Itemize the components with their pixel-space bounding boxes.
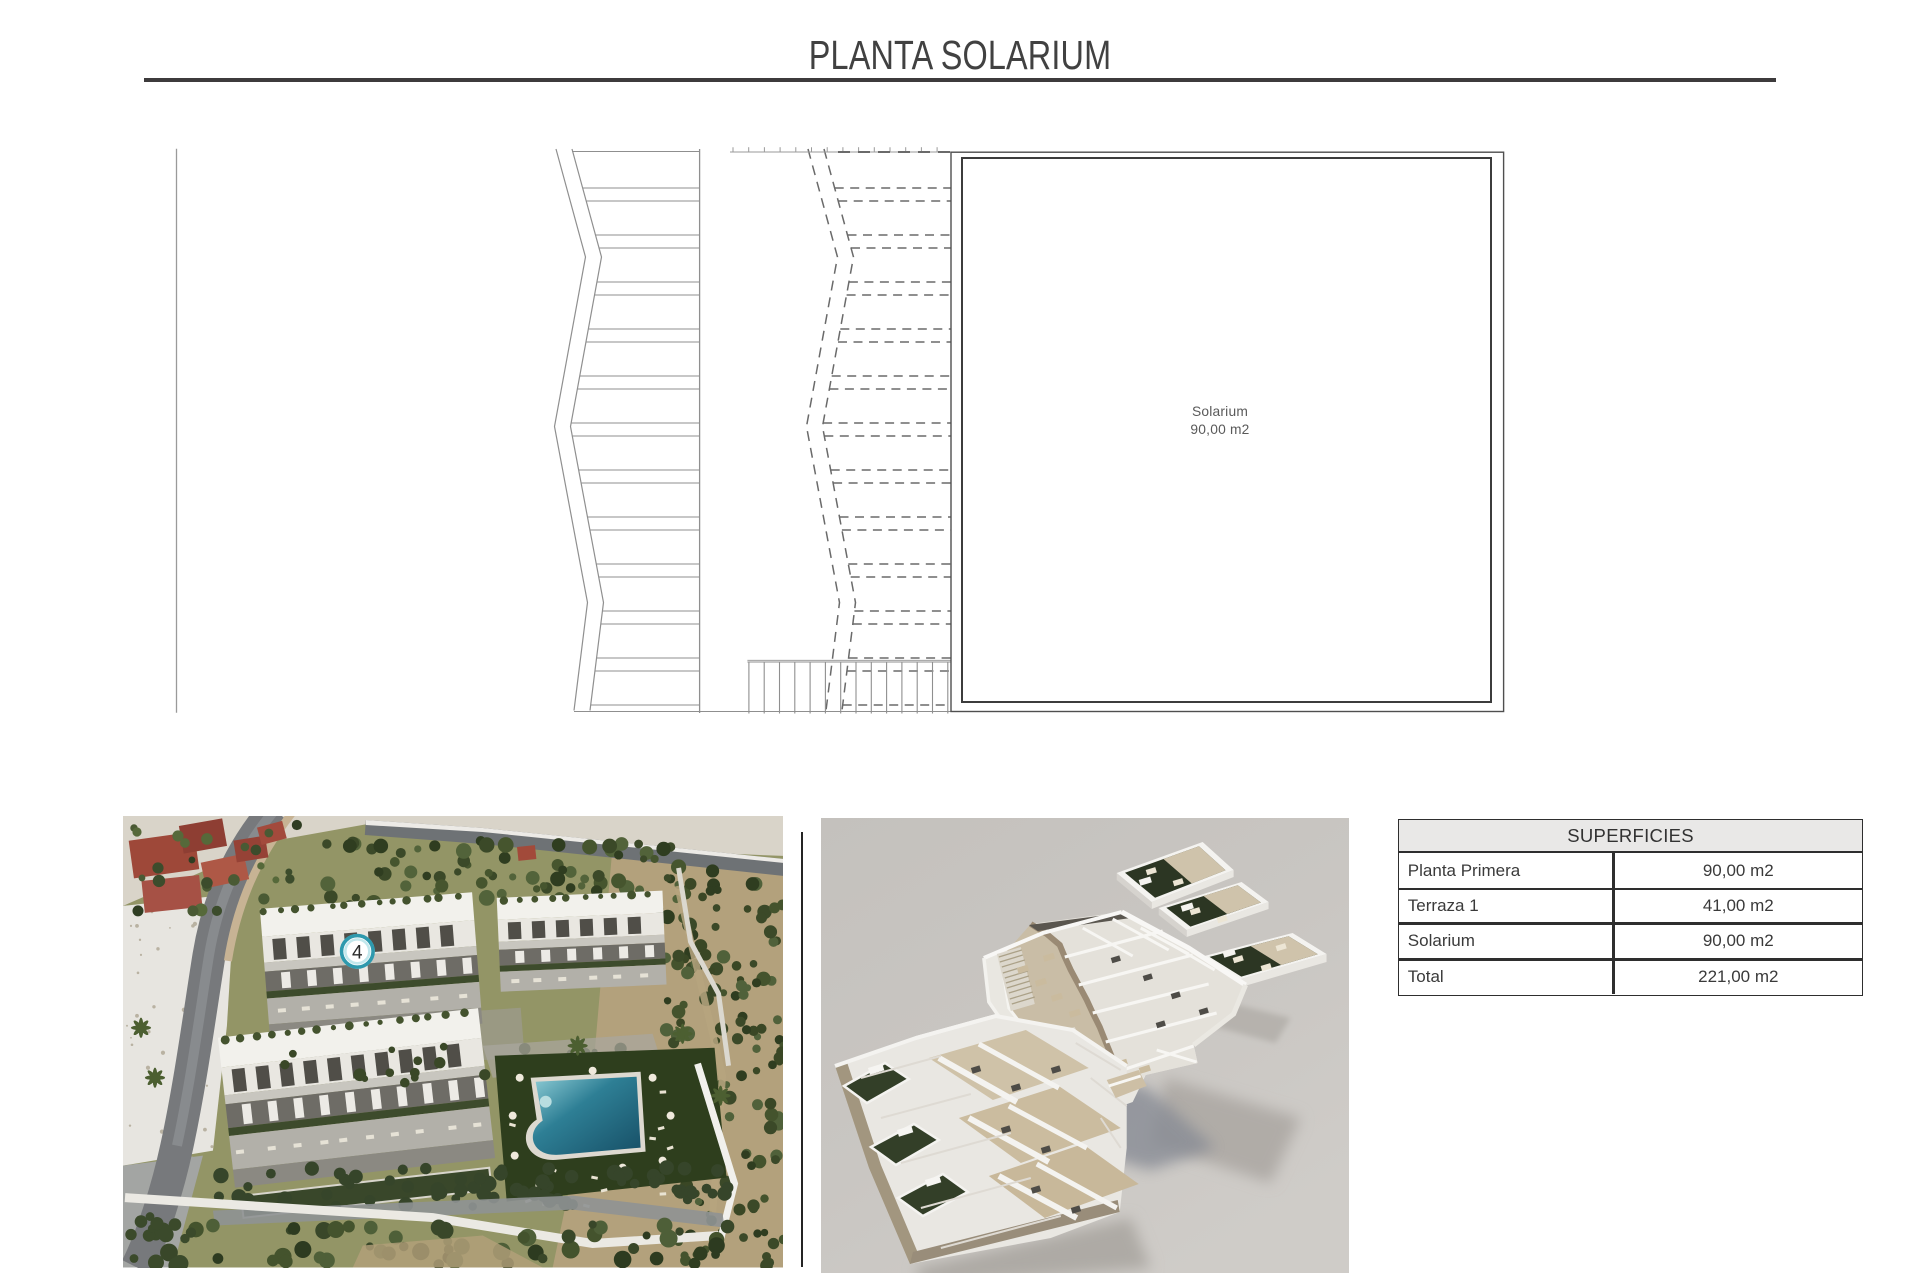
svg-text:4: 4 xyxy=(352,942,363,963)
svg-text:90,00 m2: 90,00 m2 xyxy=(1190,422,1249,437)
svg-text:Solarium: Solarium xyxy=(1192,404,1248,419)
